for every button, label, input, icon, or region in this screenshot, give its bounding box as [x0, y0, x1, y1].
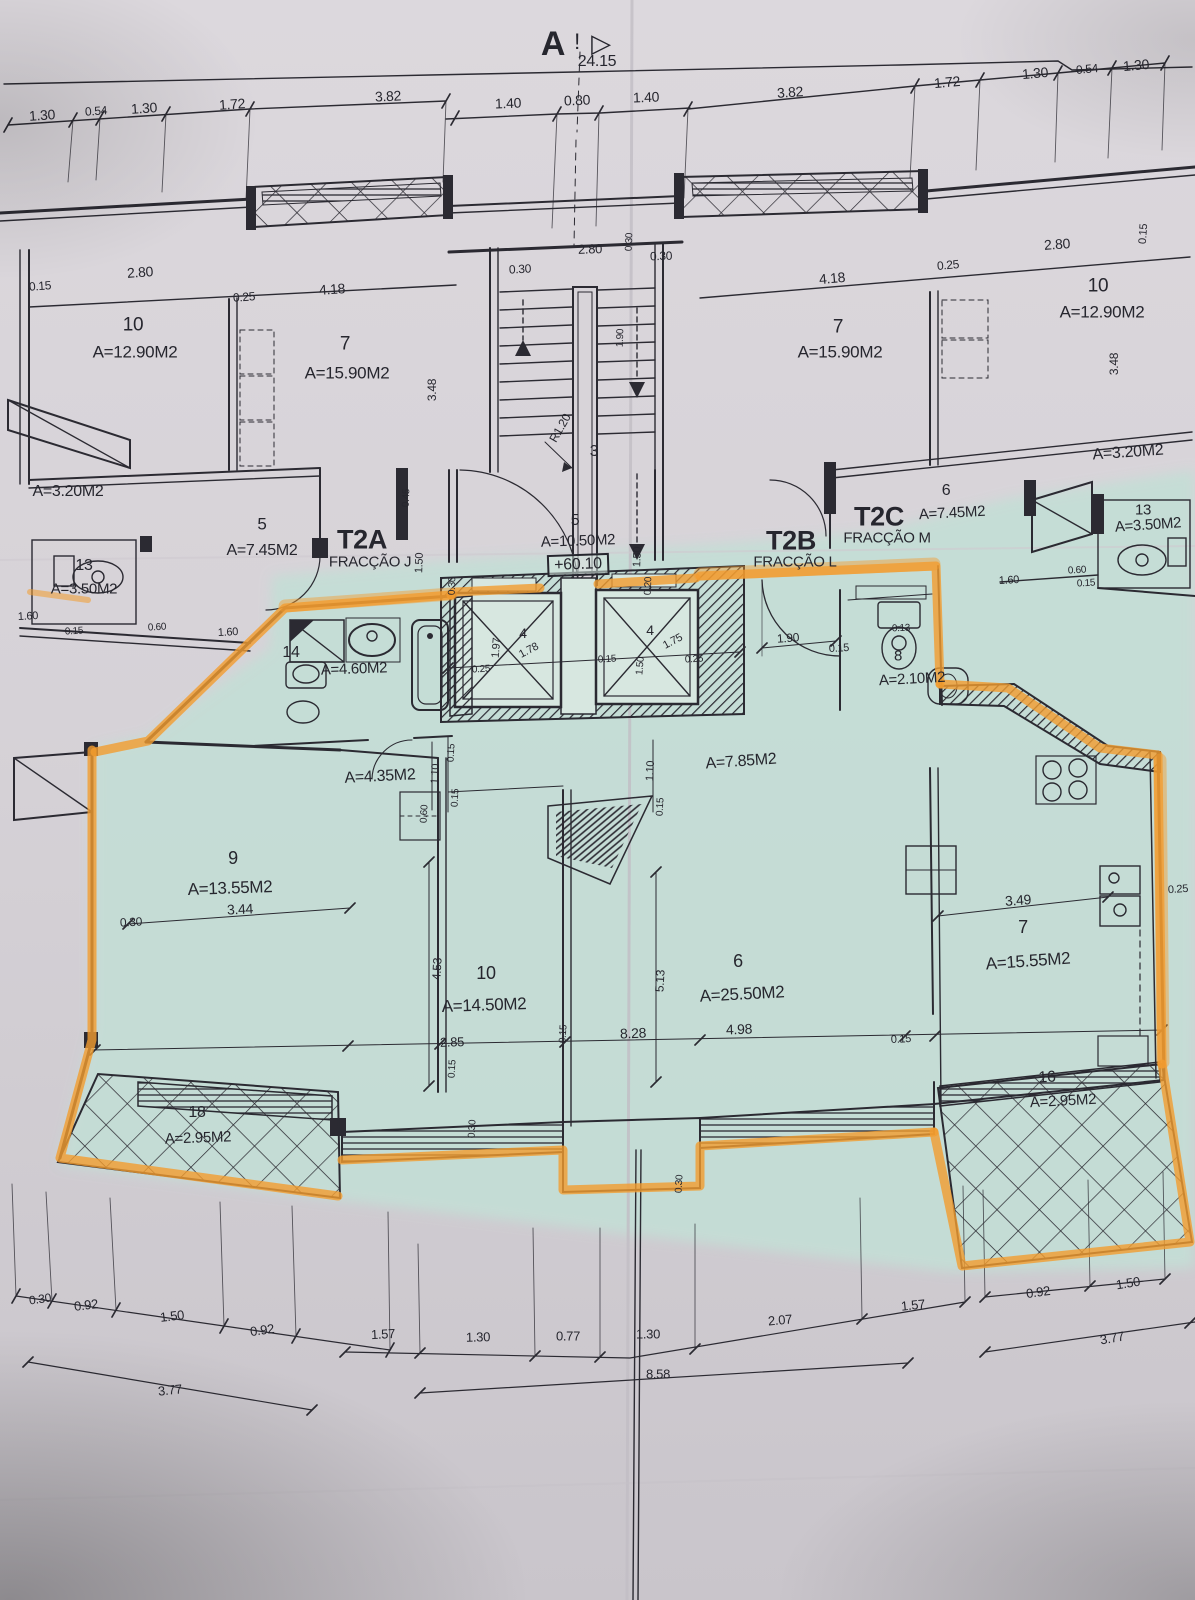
overall-dimension: 24.15 — [578, 54, 617, 70]
balcony-16 — [938, 1062, 1192, 1268]
floor-plan-photo: A ! ▷ 24.15 1.300.541.301.723.821.400.80… — [0, 0, 1195, 1600]
section-marker-tick: ! — [574, 31, 580, 53]
section-letter: A — [541, 27, 565, 61]
floorplan-drawing — [0, 0, 1195, 1600]
